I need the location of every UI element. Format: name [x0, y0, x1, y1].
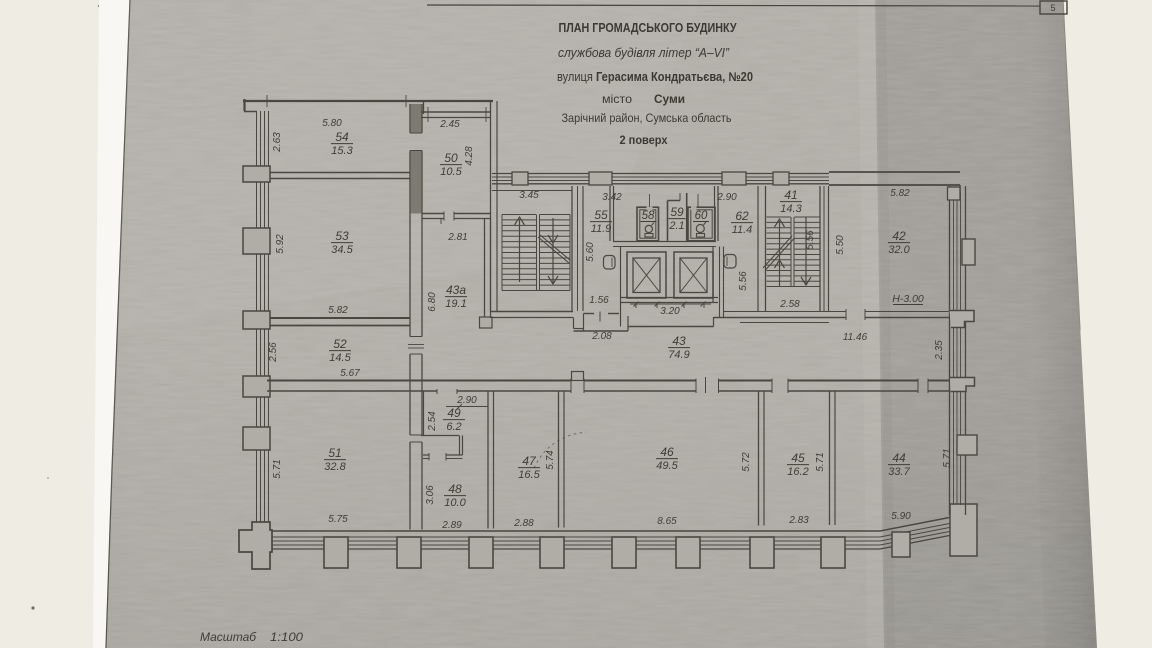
svg-text:8.65: 8.65 [657, 516, 677, 527]
svg-text:2.56: 2.56 [268, 342, 279, 363]
svg-text:5.82: 5.82 [890, 188, 910, 199]
svg-text:3.45: 3.45 [519, 190, 539, 201]
svg-text:2.81: 2.81 [447, 232, 467, 243]
svg-text:46: 46 [660, 445, 674, 459]
svg-text:11.9: 11.9 [591, 223, 612, 235]
svg-text:16.2: 16.2 [787, 466, 808, 478]
svg-text:службова будівля літер “А–VІ”: службова будівля літер “А–VІ” [558, 46, 730, 60]
svg-text:5.71: 5.71 [942, 448, 953, 467]
svg-text:5.90: 5.90 [891, 511, 911, 522]
svg-text:60: 60 [695, 210, 708, 222]
svg-text:48: 48 [448, 482, 462, 496]
svg-text:16.5: 16.5 [518, 469, 540, 481]
svg-text:вулиця Герасима Кондратьєва,: вулиця Герасима Кондратьєва, №20 [557, 70, 753, 84]
svg-text:2.58: 2.58 [779, 299, 800, 310]
svg-text:2.1: 2.1 [668, 220, 684, 232]
svg-text:1.56: 1.56 [589, 295, 609, 306]
svg-text:5: 5 [1050, 3, 1055, 13]
svg-text:1:100: 1:100 [270, 632, 304, 644]
svg-text:2 поверх: 2 поверх [620, 133, 668, 147]
svg-text:2.35: 2.35 [934, 340, 945, 361]
svg-text:3.20: 3.20 [660, 306, 680, 317]
svg-text:Масштаб: Масштаб [200, 632, 257, 644]
svg-text:15.3: 15.3 [331, 145, 353, 157]
svg-text:2.88: 2.88 [513, 518, 534, 529]
svg-text:5.50: 5.50 [835, 235, 846, 255]
svg-text:5.80: 5.80 [322, 118, 342, 129]
svg-text:5.67: 5.67 [340, 368, 360, 379]
svg-text:5.82: 5.82 [328, 305, 348, 316]
svg-text:33.7: 33.7 [888, 466, 910, 478]
svg-text:10.5: 10.5 [440, 166, 462, 178]
svg-text:2.63: 2.63 [272, 132, 283, 153]
svg-text:11.4: 11.4 [732, 224, 753, 236]
svg-text:45: 45 [791, 451, 805, 465]
svg-text:2.89: 2.89 [441, 520, 462, 531]
svg-text:3.06: 3.06 [425, 485, 436, 505]
svg-text:51: 51 [328, 446, 341, 460]
svg-text:58: 58 [642, 210, 655, 222]
svg-text:10.0: 10.0 [444, 497, 466, 509]
svg-text:43: 43 [672, 334, 686, 348]
svg-text:14.3: 14.3 [780, 203, 802, 215]
svg-text:74.9: 74.9 [668, 349, 689, 361]
svg-text:41: 41 [784, 188, 797, 202]
svg-text:2.45: 2.45 [439, 119, 460, 130]
svg-text:43а: 43а [446, 283, 466, 297]
svg-text:14.5: 14.5 [329, 352, 351, 364]
svg-text:32.8: 32.8 [324, 461, 346, 473]
svg-text:50: 50 [444, 151, 458, 165]
svg-text:62: 62 [735, 209, 749, 223]
svg-text:4.28: 4.28 [464, 146, 475, 166]
svg-text:місто: місто [602, 92, 632, 106]
svg-text:5.72: 5.72 [741, 452, 752, 472]
svg-text:55: 55 [594, 208, 608, 222]
svg-text:2.08: 2.08 [591, 331, 612, 342]
svg-text:5.56: 5.56 [805, 230, 816, 250]
svg-text:2.90: 2.90 [456, 395, 477, 406]
svg-text:34.5: 34.5 [331, 244, 353, 256]
svg-text:2.90: 2.90 [716, 192, 737, 203]
svg-text:19.1: 19.1 [445, 298, 466, 310]
svg-text:5.60: 5.60 [585, 242, 596, 262]
svg-text:44: 44 [892, 451, 906, 465]
svg-text:49: 49 [447, 406, 461, 420]
svg-text:5.74: 5.74 [545, 450, 556, 470]
svg-text:5.56: 5.56 [738, 271, 749, 291]
svg-text:11.46: 11.46 [843, 332, 868, 343]
svg-text:5.71: 5.71 [815, 452, 826, 471]
svg-text:5.71: 5.71 [272, 459, 283, 478]
svg-text:53: 53 [335, 229, 349, 243]
svg-text:49.5: 49.5 [656, 460, 678, 472]
svg-text:ПЛАН ГРОМАДСЬКОГО БУДИНКУ: ПЛАН ГРОМАДСЬКОГО БУДИНКУ [559, 20, 738, 35]
svg-text:42: 42 [892, 229, 906, 243]
svg-text:6.80: 6.80 [427, 292, 438, 312]
svg-text:5.75: 5.75 [328, 514, 348, 525]
svg-text:2.54: 2.54 [427, 411, 438, 432]
svg-text:Зарічний район, Сумська област: Зарічний район, Сумська область [562, 111, 732, 125]
svg-text:2.83: 2.83 [788, 515, 809, 526]
svg-text:Н-3.00: Н-3.00 [892, 293, 924, 305]
svg-text:5.92: 5.92 [275, 234, 286, 254]
svg-text:47: 47 [522, 454, 537, 468]
svg-text:3.42: 3.42 [602, 192, 622, 203]
svg-text:54: 54 [335, 130, 349, 144]
svg-text:59: 59 [670, 205, 684, 219]
svg-text:Суми: Суми [654, 92, 685, 106]
svg-text:32.0: 32.0 [888, 244, 910, 256]
svg-text:6.2: 6.2 [446, 421, 461, 433]
svg-text:52: 52 [333, 337, 347, 351]
